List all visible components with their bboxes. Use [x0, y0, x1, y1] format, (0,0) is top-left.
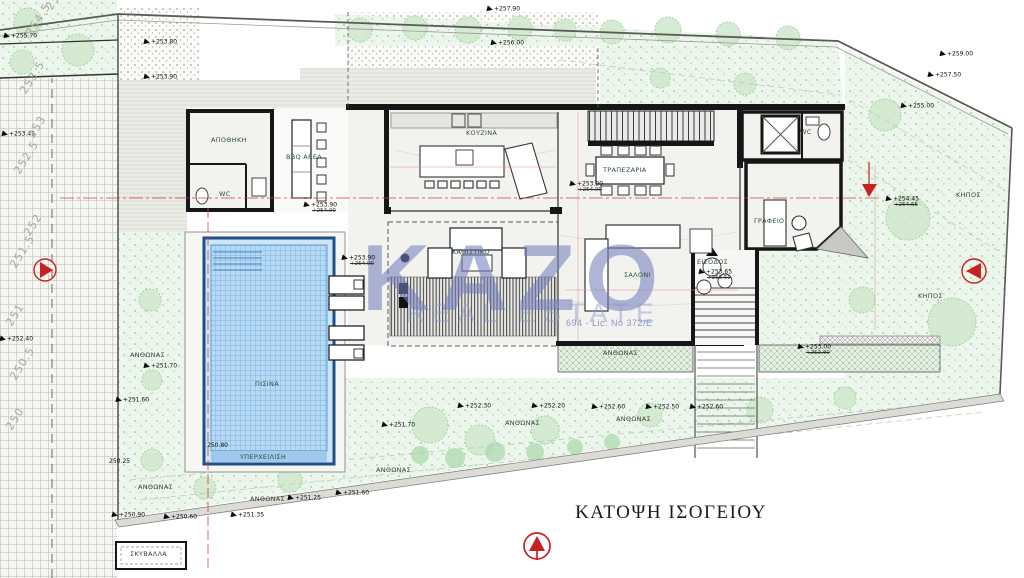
north-compass-icon — [524, 533, 550, 560]
pool-overflow-strip — [211, 451, 327, 462]
floor-plan-drawing — [0, 0, 1024, 578]
deck-planter — [401, 254, 410, 263]
road-strip — [0, 14, 117, 578]
floor-plan-canvas: KAZO REAL ESTATE 694 - Lic. No 372/E ΑΠΟ… — [0, 0, 1024, 578]
plan-title: ΚΑΤΟΨΗ ΙΣΟΓΕΙΟΥ — [556, 502, 786, 524]
rubbish-enclosure — [116, 542, 186, 569]
interior-staircase — [588, 111, 714, 146]
elevator — [762, 116, 799, 153]
deck-planks — [390, 277, 556, 336]
swimming-pool — [204, 238, 334, 464]
entrance-corridor — [691, 247, 759, 345]
